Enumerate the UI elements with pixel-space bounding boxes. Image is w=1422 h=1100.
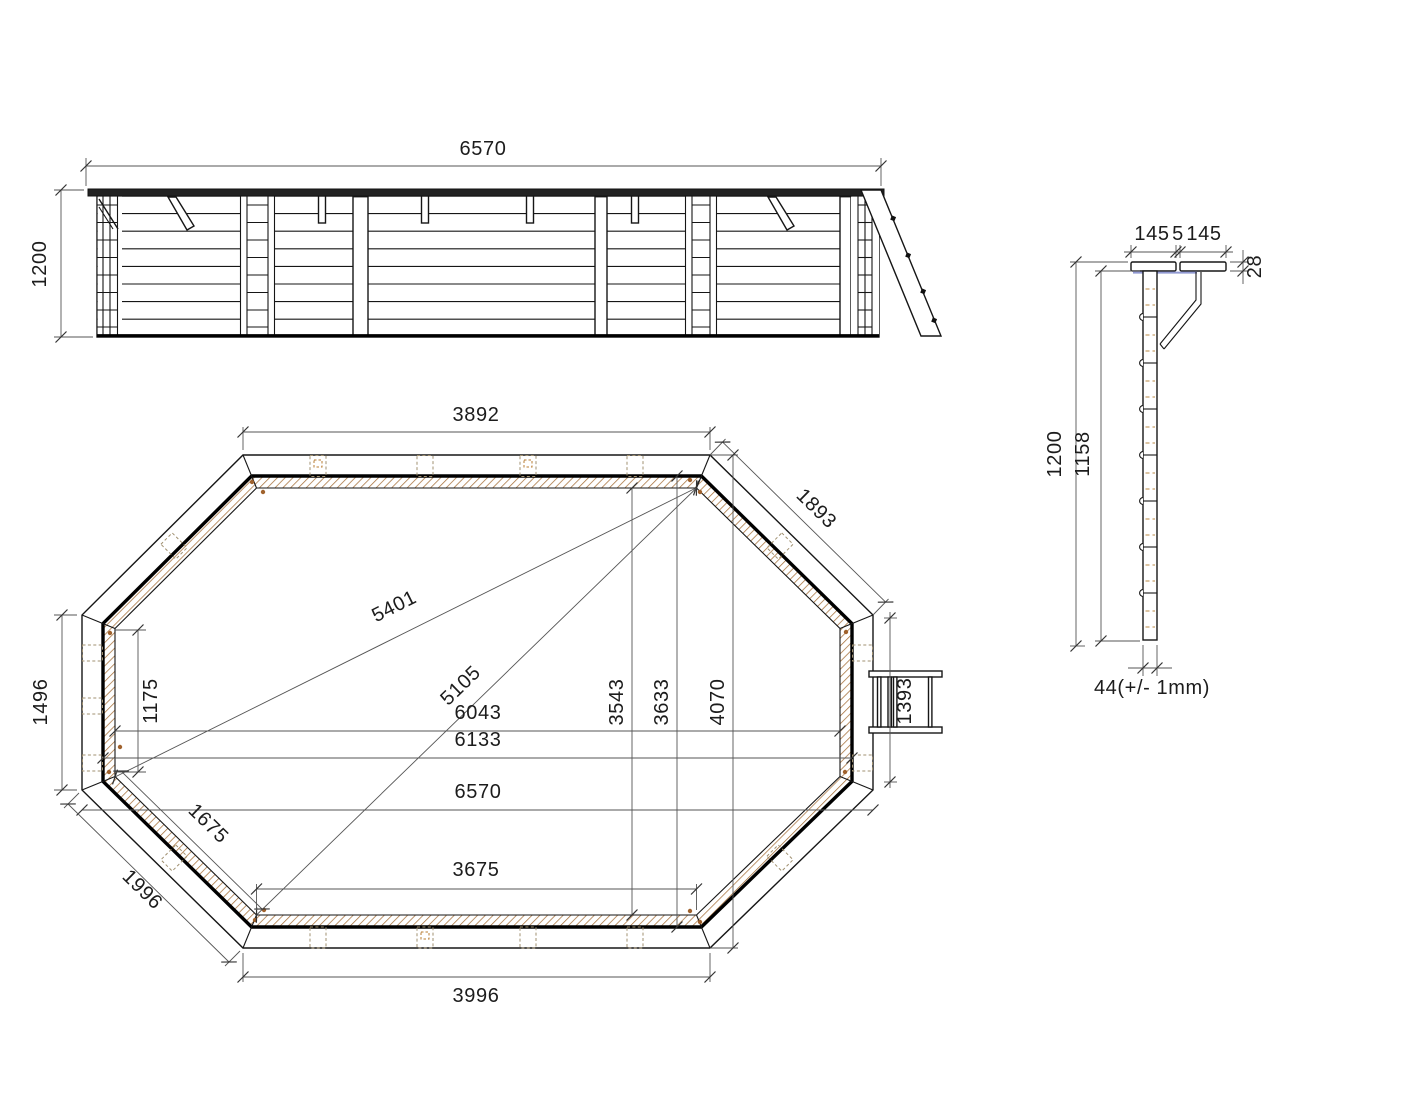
- wall-post: [353, 197, 368, 337]
- dim-label-1893: 1893: [792, 484, 841, 533]
- dim-plan-diagonal-long: 5401: [108, 481, 704, 785]
- dim-label-3543: 3543: [606, 679, 628, 726]
- dim-label-1175: 1175: [140, 678, 162, 723]
- wall-post: [840, 197, 851, 337]
- dim-label-1158: 1158: [1072, 431, 1094, 476]
- cap-board-right: [1180, 262, 1226, 271]
- dim-label-1393: 1393: [894, 678, 916, 725]
- cap-board-left: [1131, 262, 1176, 271]
- dim-label-3892: 3892: [453, 404, 500, 426]
- dim-label-3633: 3633: [651, 679, 673, 726]
- dim-plan-left-edge: 1496: [30, 610, 77, 796]
- dim-label-6570-elevation: 6570: [460, 138, 507, 160]
- dim-label-1675: 1675: [184, 799, 233, 848]
- dim-label-1496: 1496: [30, 679, 52, 726]
- dim-label-44: 44(+/- 1mm): [1094, 677, 1210, 699]
- dim-plan-mid-width: 6133: [98, 729, 858, 764]
- dim-section-caps: 145 5 145: [1124, 223, 1233, 258]
- dim-label-145-right: 145: [1186, 223, 1221, 245]
- corner-strip-left: [97, 196, 122, 337]
- dim-label-6043: 6043: [455, 702, 502, 724]
- dim-label-3675: 3675: [453, 859, 500, 881]
- dim-plan-bottom-outer-width: 3996: [238, 953, 716, 1007]
- dim-plan-inner-height: 3543: [606, 483, 638, 921]
- dim-plan-top-width: 3892: [238, 404, 716, 450]
- dim-section-inner-height: 1158: [1072, 266, 1140, 647]
- section-view: 145 5 145 28 1200 1158 44(: [1044, 223, 1266, 699]
- dim-section-plank-width: 44(+/- 1mm): [1094, 645, 1210, 699]
- dim-label-28: 28: [1244, 255, 1266, 278]
- dim-elevation-width: 6570: [81, 138, 887, 186]
- dim-label-6133: 6133: [455, 729, 502, 751]
- dim-label-1200-elevation: 1200: [29, 241, 51, 288]
- dim-label-5: 5: [1172, 223, 1184, 245]
- pool-wall-elevation: [97, 196, 879, 337]
- dim-label-5401: 5401: [368, 586, 420, 627]
- plan-view: 3892 1893 5401 5105 6043: [30, 404, 942, 1007]
- dim-label-6570-plan: 6570: [455, 781, 502, 803]
- dim-section-cap-thickness: 28: [1230, 250, 1266, 284]
- dim-label-4070: 4070: [707, 679, 729, 726]
- elevation-view: 6570 1200: [29, 138, 941, 343]
- wall-post: [595, 197, 607, 337]
- dim-elevation-height: 1200: [29, 185, 93, 343]
- dim-plan-bottom-inner-width: 3675: [251, 859, 702, 910]
- pool-drawing: 6570 1200: [0, 0, 1422, 1100]
- corner-strip-mid2: [685, 196, 717, 337]
- dim-label-1996: 1996: [118, 865, 167, 914]
- dim-label-1200-section: 1200: [1044, 431, 1066, 478]
- cap-bracket: [1160, 272, 1201, 349]
- dim-plan-mid-height: 3633: [651, 471, 683, 933]
- dim-label-3996: 3996: [453, 985, 500, 1007]
- corner-strip-mid1: [240, 196, 275, 337]
- top-rail-elevation: [88, 189, 884, 196]
- technical-drawing-page: 6570 1200: [0, 0, 1422, 1100]
- dim-plan-left-inner-edge: 1175: [115, 625, 162, 778]
- wall-plank-stack: [1140, 271, 1157, 640]
- dim-label-145-left: 145: [1134, 223, 1169, 245]
